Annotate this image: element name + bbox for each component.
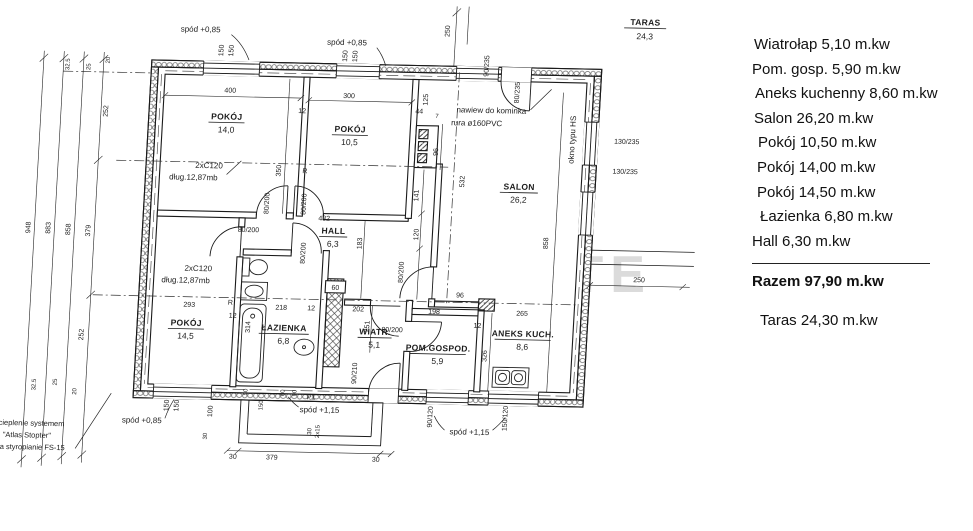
dim-12-axis: 12	[307, 305, 315, 312]
c120-upper-2: dług.12,87mb	[169, 172, 219, 182]
dim-96-chimney: 96	[433, 148, 440, 156]
dim-30-porch-r: 30	[372, 457, 380, 464]
dim-183: 183	[357, 237, 365, 249]
dim-293: 293	[183, 302, 195, 309]
ocieplenie-line1: ocieplenie systemem	[0, 418, 65, 428]
dim-80-200-d4: 80/200	[300, 242, 308, 264]
room-label-taras: TARAS	[630, 17, 661, 28]
dim-150-w1b: 150	[228, 45, 236, 57]
dim-90-porch: 90	[292, 389, 298, 396]
dim-948: 948	[25, 221, 33, 233]
dim-20-top: 20	[106, 56, 112, 63]
dim-32-5-top: 32.5	[65, 58, 72, 70]
dim-300: 300	[343, 93, 355, 100]
dim-379-porch: 379	[266, 454, 278, 461]
legend-total: Razem 97,90 m.kw	[752, 270, 957, 295]
dim-60-shaft: 60	[331, 285, 339, 292]
dim-314: 314	[245, 321, 253, 333]
dim-198: 198	[428, 309, 440, 316]
dim-44: 44	[415, 108, 423, 115]
room-label-pokoj-14-0: POKÓJ	[211, 110, 243, 122]
dim-265: 265	[516, 311, 528, 318]
dim-30-porch-l: 30	[229, 454, 237, 461]
legend-item: Aneks kuchenny 8,60 m.kw	[755, 82, 957, 107]
room-area-hall: 6,3	[327, 239, 340, 249]
spod-085-top-left: spód +0,85	[181, 25, 222, 35]
dim-30-step: 30	[307, 427, 313, 434]
dim-150-120: 150/120	[502, 406, 510, 432]
legend-item: Łazienka 6,80 m.kw	[760, 205, 957, 230]
nawiew-line2: rura ø160PVC	[451, 118, 503, 128]
dim-252-upper: 252	[103, 105, 111, 117]
spod-115-right: spód +1,15	[449, 427, 490, 437]
dim-350: 350	[276, 165, 284, 177]
dim-100: 100	[207, 405, 215, 417]
nawiew-line1: nawiew do kominka	[456, 105, 527, 115]
room-label-pokoj-14-5: POKÓJ	[170, 316, 202, 328]
legend-item: Hall 6,30 m.kw	[752, 230, 957, 255]
room-area-lazienka: 6,8	[277, 336, 290, 346]
legend-item: Pokój 14,50 m.kw	[757, 181, 957, 206]
dim-150-w6a: 150	[163, 399, 171, 411]
dim-250-terrace: 250	[633, 277, 645, 284]
dim-218: 218	[275, 305, 287, 312]
room-label-hall: HALL	[321, 226, 345, 236]
dim-30-left: 30	[203, 432, 209, 439]
dim-32-5-bot: 32.5	[31, 378, 38, 390]
room-label-salon: SALON	[503, 181, 535, 192]
legend-item: Pom. gosp. 5,90 m.kw	[752, 58, 957, 83]
dim-90-120: 90/120	[427, 406, 435, 428]
dim-12-aneks: 12	[473, 323, 481, 330]
dim-150-w2b: 150	[352, 50, 360, 62]
dim-883: 883	[45, 222, 53, 234]
r-mark-upper: R	[302, 168, 307, 175]
room-area-taras: 24,3	[636, 31, 653, 41]
dim-150-w6b: 150	[173, 400, 181, 412]
dim-2x15-step: 2x15	[315, 424, 322, 438]
dim-400: 400	[224, 87, 236, 94]
c120-upper-1: 2xC120	[195, 161, 224, 171]
dim-80-200-d1: 80/200	[263, 193, 271, 215]
legend-item: Pokój 10,50 m.kw	[758, 131, 957, 156]
dim-150-w1a: 150	[218, 44, 226, 56]
dim-858-left: 858	[65, 223, 73, 235]
dim-251: 251	[364, 321, 372, 333]
dim-60-porch: 60	[280, 389, 286, 396]
dim-252-lower: 252	[78, 329, 86, 341]
room-area-pokoj-14-5: 14,5	[177, 331, 194, 341]
dim-80-200-d2: 80/200	[300, 193, 308, 215]
legend-divider	[752, 263, 930, 264]
dim-202: 202	[352, 306, 364, 313]
dim-80-200-d3: 80/200	[238, 227, 260, 234]
legend-terrace: Taras 24,30 m.kw	[760, 309, 957, 334]
spod-115-porch: spód +1,15	[299, 405, 340, 415]
scanned-floor-plan-page: BESTATE	[0, 0, 973, 531]
spod-085-bottom: spód +0,85	[122, 415, 163, 425]
dim-25-top: 25	[86, 63, 92, 70]
room-area-pokoj-14-0: 14,0	[218, 124, 235, 134]
dim-12-p145: 12	[229, 313, 237, 320]
room-label-pokoj-10-5: POKÓJ	[334, 123, 366, 135]
ocieplenie-line2: "Atlas Stopter"	[2, 430, 51, 440]
dim-20-bot: 20	[72, 387, 78, 394]
room-area-wiatrolap: 5,1	[368, 340, 381, 350]
room-label-aneks-kuch: ANEKS KUCH.	[492, 328, 555, 339]
dim-96-wiatr: 96	[456, 292, 464, 299]
spod-085-top-mid: spód +0,85	[327, 38, 368, 48]
dim-858-salon: 858	[543, 237, 551, 249]
plan: POKÓJ 14,0 POKÓJ 10,5 SALON 26,2 HALL 6,…	[0, 0, 708, 481]
dim-130-235-a: 130/235	[614, 139, 640, 147]
p1-mark: P1	[307, 394, 316, 401]
dim-326: 326	[481, 350, 489, 362]
room-area-pom-gospod: 5,9	[431, 356, 444, 366]
room-label-lazienka: ŁAZIENKA	[261, 322, 307, 333]
dim-130-235-b: 130/235	[612, 169, 638, 177]
dim-90-235: 90/235	[483, 55, 491, 77]
ocieplenie-line3: na styropianie FS-15	[0, 442, 65, 452]
c120-lower-2: dług.12,87mb	[161, 275, 211, 285]
dim-150-w2a: 150	[342, 50, 350, 62]
dim-125: 125	[423, 94, 431, 106]
dim-80-200-d5: 80/200	[398, 261, 406, 283]
dim-90-210: 90/210	[351, 362, 359, 384]
legend-item: Wiatrołap 5,10 m.kw	[754, 33, 957, 58]
dim-120: 120	[413, 229, 421, 241]
dim-25-bot: 25	[53, 378, 59, 385]
room-area-pokoj-10-5: 10,5	[341, 137, 358, 147]
dim-80-235: 80/235	[514, 82, 522, 104]
exterior-walls	[133, 60, 602, 407]
c120-lower-1: 2xC120	[184, 264, 213, 274]
dim-532: 532	[459, 175, 467, 187]
dim-80-200-d6: 80/200	[381, 327, 403, 334]
legend-item: Salon 26,20 m.kw	[754, 107, 957, 132]
dim-141: 141	[413, 190, 421, 202]
r-mark-lower: R	[228, 300, 233, 307]
dim-379-left: 379	[85, 225, 93, 237]
room-area-aneks-kuch: 8,6	[516, 342, 529, 352]
area-legend: Wiatrołap 5,10 m.kw Pom. gosp. 5,90 m.kw…	[752, 33, 957, 334]
dim-432: 432	[318, 215, 330, 222]
dim-250-top: 250	[444, 25, 452, 37]
dim-12-top: 12	[298, 108, 306, 115]
room-area-salon: 26,2	[510, 194, 527, 204]
dim-50: 50	[243, 388, 249, 395]
room-label-pom-gospod: POM.GOSPOD.	[405, 342, 470, 353]
legend-item: Pokój 14,00 m.kw	[757, 156, 957, 181]
dim-150-porch: 150	[258, 400, 265, 411]
